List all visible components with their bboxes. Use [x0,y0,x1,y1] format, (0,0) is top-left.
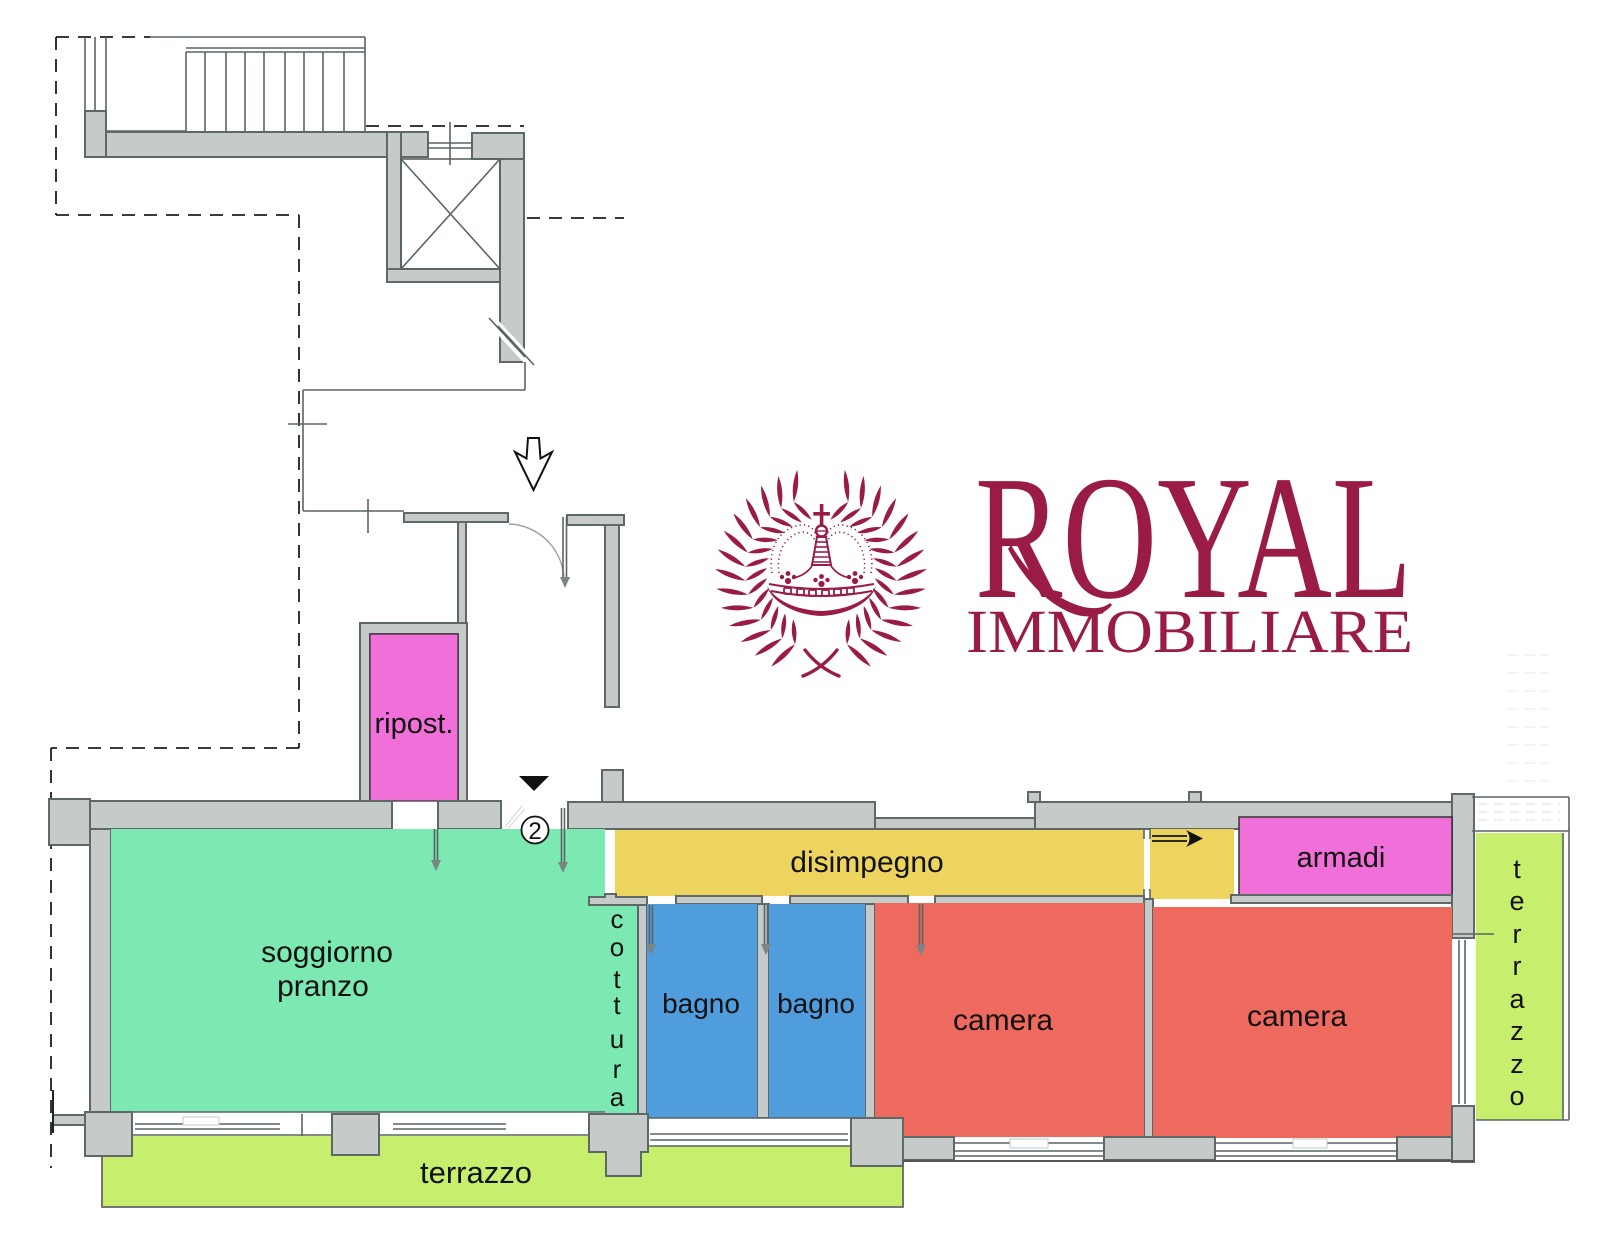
svg-text:bagno: bagno [777,988,855,1019]
svg-text:camera: camera [1247,1000,1347,1033]
svg-text:pranzo: pranzo [277,970,369,1003]
svg-text:r: r [613,1054,622,1084]
svg-text:o: o [1509,1081,1524,1111]
svg-text:a: a [1509,984,1525,1014]
svg-text:disimpegno: disimpegno [790,846,943,879]
svg-text:soggiorno: soggiorno [261,936,393,969]
svg-text:a: a [610,1082,625,1112]
svg-text:IMMOBILIARE: IMMOBILIARE [966,599,1413,666]
svg-text:e: e [1509,886,1524,916]
svg-text:terrazzo: terrazzo [420,1155,532,1190]
svg-text:o: o [610,932,624,962]
svg-text:z: z [1510,1016,1524,1046]
svg-text:t: t [613,990,621,1020]
svg-text:armadi: armadi [1297,842,1386,874]
svg-text:r: r [1513,919,1522,949]
svg-text:c: c [611,904,624,934]
svg-text:t: t [1513,854,1521,884]
svg-text:ripost.: ripost. [375,708,454,740]
svg-text:camera: camera [953,1004,1053,1037]
svg-text:u: u [610,1024,624,1054]
svg-text:2: 2 [528,818,541,845]
svg-text:r: r [1513,951,1522,981]
svg-text:bagno: bagno [662,988,740,1019]
svg-text:z: z [1510,1049,1524,1079]
